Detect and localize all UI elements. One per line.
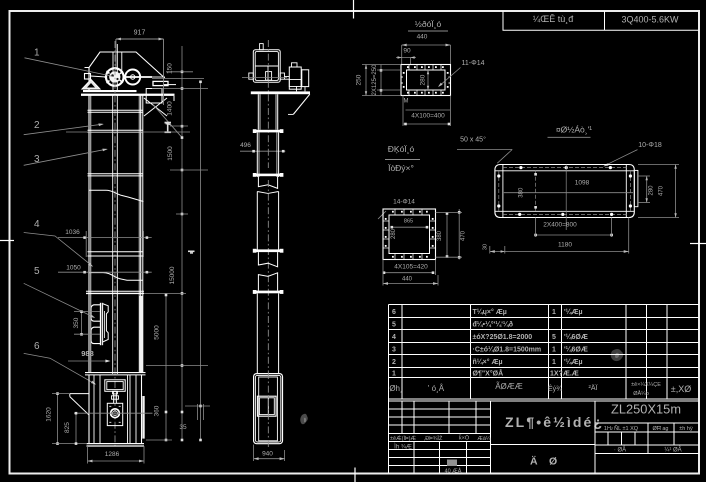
svg-text:1: 1 [34, 48, 40, 59]
svg-text:±ê×¼X¼ÇE: ±ê×¼X¼ÇE [631, 382, 661, 388]
svg-text:M: M [404, 99, 409, 105]
svg-text:1500: 1500 [167, 146, 174, 161]
svg-text:' ó¸Å: ' ó¸Å [428, 384, 445, 393]
svg-text:ÏòĐý×°: ÏòĐý×° [388, 163, 414, 173]
svg-text:11-Φ14: 11-Φ14 [462, 60, 485, 67]
svg-text:1X?Æ.Æ: 1X?Æ.Æ [550, 370, 579, 377]
svg-text:1050: 1050 [66, 265, 81, 272]
svg-text:360: 360 [154, 405, 161, 416]
svg-text:4X105=420: 4X105=420 [394, 264, 428, 271]
svg-text:470: 470 [659, 185, 665, 196]
svg-text:ñ¼×° Æµ: ñ¼×° Æµ [473, 358, 503, 366]
svg-text:1: 1 [392, 370, 396, 377]
svg-text:²ÄÏ: ²ÄÏ [589, 384, 598, 392]
svg-text:1: 1 [552, 309, 556, 316]
svg-text:30: 30 [483, 244, 489, 250]
svg-text:4X100=400: 4X100=400 [411, 113, 445, 120]
svg-text:1: 1 [552, 359, 556, 366]
svg-text:470: 470 [461, 230, 467, 241]
svg-text:15000: 15000 [169, 266, 176, 284]
svg-text:Ø: Ø [549, 456, 557, 468]
svg-text:1620: 1620 [46, 407, 53, 422]
svg-text:· ØÅ: · ØÅ [614, 447, 626, 454]
svg-text:940: 940 [262, 451, 273, 458]
svg-text:2: 2 [392, 359, 396, 366]
svg-text:ÃØÆÆ: ÃØÆÆ [495, 382, 523, 391]
svg-text:1036: 1036 [65, 229, 80, 236]
svg-text:3: 3 [392, 347, 396, 354]
svg-text:ǩ×Ö: ǩ×Ö [459, 435, 470, 442]
svg-text:¼¹ ØÅ: ¼¹ ØÅ [664, 447, 681, 454]
svg-text:865: 865 [404, 219, 413, 225]
svg-text:'¼6ØÆ: '¼6ØÆ [564, 346, 588, 354]
svg-text:6: 6 [392, 309, 396, 316]
svg-text:¤Ø½Áò¸'¹: ¤Ø½Áò¸'¹ [556, 125, 592, 135]
svg-text:4: 4 [392, 334, 396, 341]
svg-text:988: 988 [81, 349, 94, 358]
svg-text:ØÅ¼þ: ØÅ¼þ [633, 390, 649, 397]
svg-text:ØĦ ag: ØĦ ag [653, 426, 669, 432]
svg-text:90: 90 [403, 48, 411, 55]
svg-text:280: 280 [649, 185, 655, 196]
svg-text:Æà¼: Æà¼ [477, 436, 491, 442]
svg-text:5: 5 [552, 334, 556, 341]
svg-text:440: 440 [417, 34, 428, 41]
svg-text:440: 440 [402, 277, 413, 283]
svg-text:280: 280 [391, 228, 397, 239]
svg-text:±h hÿ: ±h hÿ [679, 426, 693, 432]
svg-text:±êǼ(ÌÞ)Ǽ: ±êǼ(ÌÞ)Ǽ [390, 435, 416, 442]
svg-text:250: 250 [356, 74, 363, 85]
svg-text:ĐĶóÏ¸ó: ĐĶóÏ¸ó [388, 144, 415, 154]
svg-text:1098: 1098 [575, 180, 590, 187]
svg-text:350: 350 [73, 317, 80, 328]
svg-text:150: 150 [167, 63, 174, 74]
svg-text:380: 380 [519, 187, 525, 198]
svg-text:5000: 5000 [154, 325, 161, 340]
svg-text:40 ÆÅ: 40 ÆÅ [445, 468, 462, 475]
svg-text:·C±ó¼Ø1.8=1500mm: ·C±ó¼Ø1.8=1500mm [473, 346, 542, 354]
svg-text:T¼ų×° Æµ: T¼ų×° Æµ [473, 308, 507, 316]
svg-text:4: 4 [34, 219, 40, 230]
svg-text:Ø¶"X°ØÅ: Ø¶"X°ØÅ [473, 368, 504, 377]
svg-text:Ìh ¾Æ: Ìh ¾Æ [394, 444, 412, 451]
svg-text:825: 825 [64, 422, 71, 433]
svg-text:'¼Æµ: '¼Æµ [564, 358, 583, 366]
svg-text:1286: 1286 [105, 451, 120, 458]
svg-text:đ¼•¼°'¼'¼ð: đ¼•¼°'¼'¼ð [473, 321, 513, 329]
svg-text:6: 6 [34, 341, 40, 352]
svg-text:917: 917 [134, 30, 146, 37]
svg-text:1400: 1400 [167, 101, 174, 116]
svg-text:280: 280 [420, 74, 427, 85]
svg-text:5: 5 [392, 322, 396, 329]
svg-text:ZL250X15m: ZL250X15m [611, 402, 681, 417]
svg-text:496: 496 [240, 142, 251, 149]
svg-text:Ä: Ä [530, 455, 538, 468]
svg-text:Êý¾: Êý¾ [548, 384, 562, 393]
svg-text:'¼6ØÆ: '¼6ØÆ [564, 333, 588, 341]
svg-text:50 x 45°: 50 x 45° [460, 136, 486, 144]
svg-text:'¼Æµ: '¼Æµ [564, 308, 583, 316]
svg-text:3Q400-5.6KW: 3Q400-5.6KW [621, 15, 679, 25]
svg-text:10-Φ18: 10-Φ18 [638, 142, 662, 149]
svg-text:Øh¸: Øh¸ [389, 384, 402, 393]
svg-text:2: 2 [34, 120, 40, 131]
svg-text:14-Φ14: 14-Φ14 [393, 199, 415, 206]
svg-text:2X125=250: 2X125=250 [372, 64, 378, 96]
svg-text:2X400=800: 2X400=800 [543, 222, 577, 229]
svg-text:,ĐÞ¾ÎŽ: ,ĐÞ¾ÎŽ [424, 434, 443, 442]
svg-text:35: 35 [179, 424, 187, 431]
svg-text:½ðóÏ¸ó: ½ðóÏ¸ó [415, 19, 442, 29]
svg-text:ZL¶•ê½ìdé¿: ZL¶•ê½ìdé¿ [505, 414, 602, 430]
svg-text:1: 1 [552, 347, 556, 354]
svg-text:1Ƕ ÑL ±1 XQ: 1Ƕ ÑL ±1 XQ [604, 425, 639, 432]
svg-text:±,XØ: ±,XØ [671, 384, 691, 394]
svg-text:380: 380 [437, 230, 443, 241]
svg-text:±óX?25Ø1.8=2000: ±óX?25Ø1.8=2000 [473, 334, 533, 341]
svg-text:¼ŒÊ tù¸đ: ¼ŒÊ tù¸đ [533, 14, 574, 24]
svg-text:1180: 1180 [558, 242, 572, 249]
svg-text:5: 5 [34, 266, 40, 277]
